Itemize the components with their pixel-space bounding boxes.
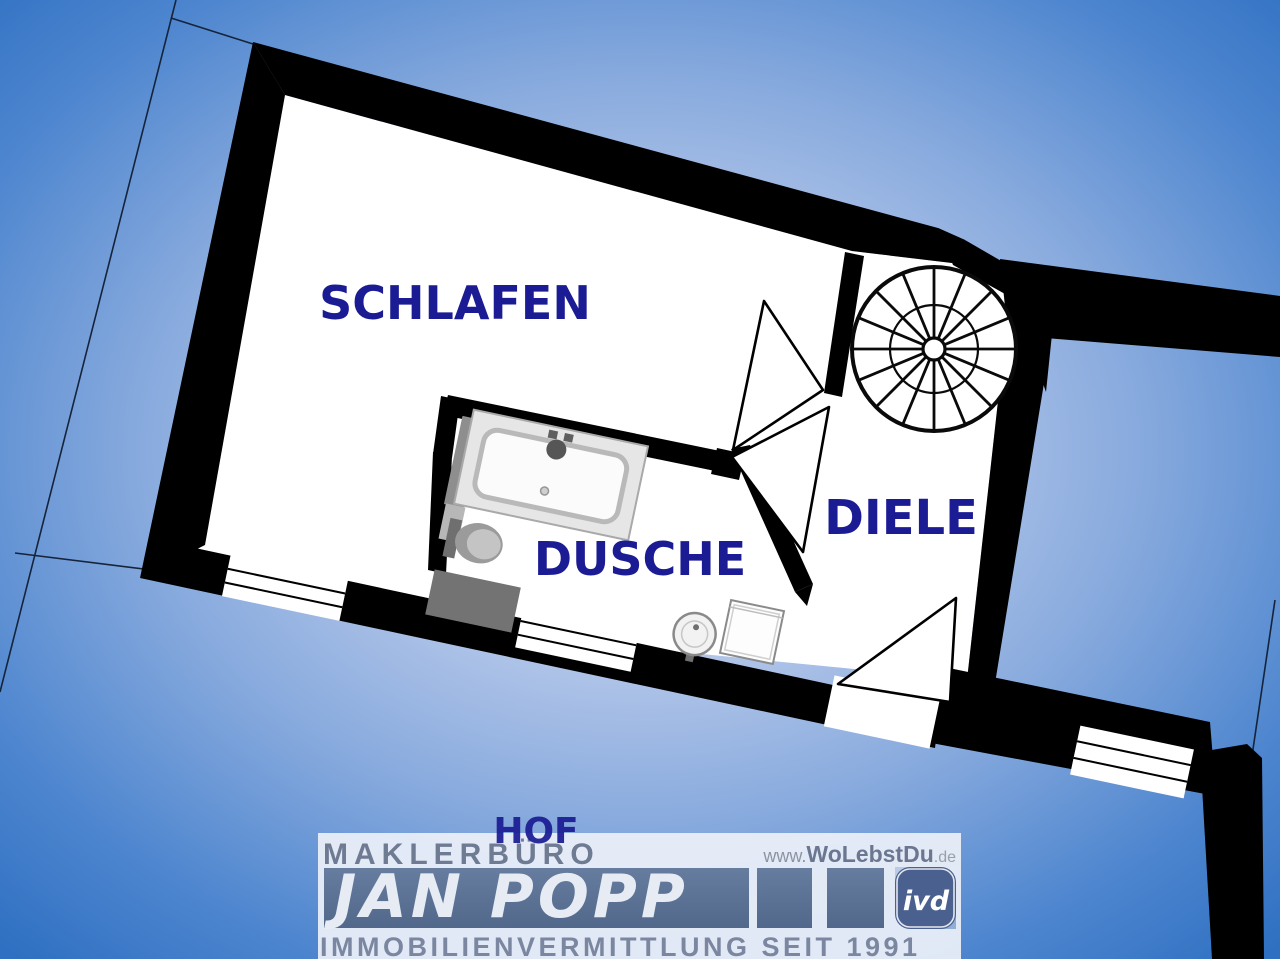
floor-plan-svg: SCHLAFEN DUSCHE DIELE MAKLERBÜRO www.WoL… [0, 0, 1280, 959]
floor-plan-screenshot: SCHLAFEN DUSCHE DIELE MAKLERBÜRO www.WoL… [0, 0, 1280, 959]
brand-agent-name: JAN POPP [324, 862, 689, 932]
shower-tray-icon [720, 600, 784, 664]
brand-watermark: MAKLERBÜRO www.WoLebstDu.de JAN POPP ivd… [318, 833, 961, 959]
brand-website-name: WoLebstDu [806, 841, 933, 867]
ivd-badge: ivd [895, 867, 956, 929]
room-label-schlafen: SCHLAFEN [319, 276, 591, 330]
brand-website-prefix: www. [762, 846, 806, 866]
spiral-staircase-icon [852, 267, 1016, 431]
brand-square [827, 868, 884, 928]
room-label-hof: HOF [493, 811, 578, 852]
brand-tagline: IMMOBILIENVERMITTLUNG SEIT 1991 [320, 932, 921, 959]
room-label-diele: DIELE [824, 490, 978, 546]
ivd-badge-label: ivd [903, 886, 950, 917]
room-label-dusche: DUSCHE [534, 532, 746, 586]
brand-square [757, 868, 812, 928]
brand-website-tld: .de [934, 849, 956, 866]
